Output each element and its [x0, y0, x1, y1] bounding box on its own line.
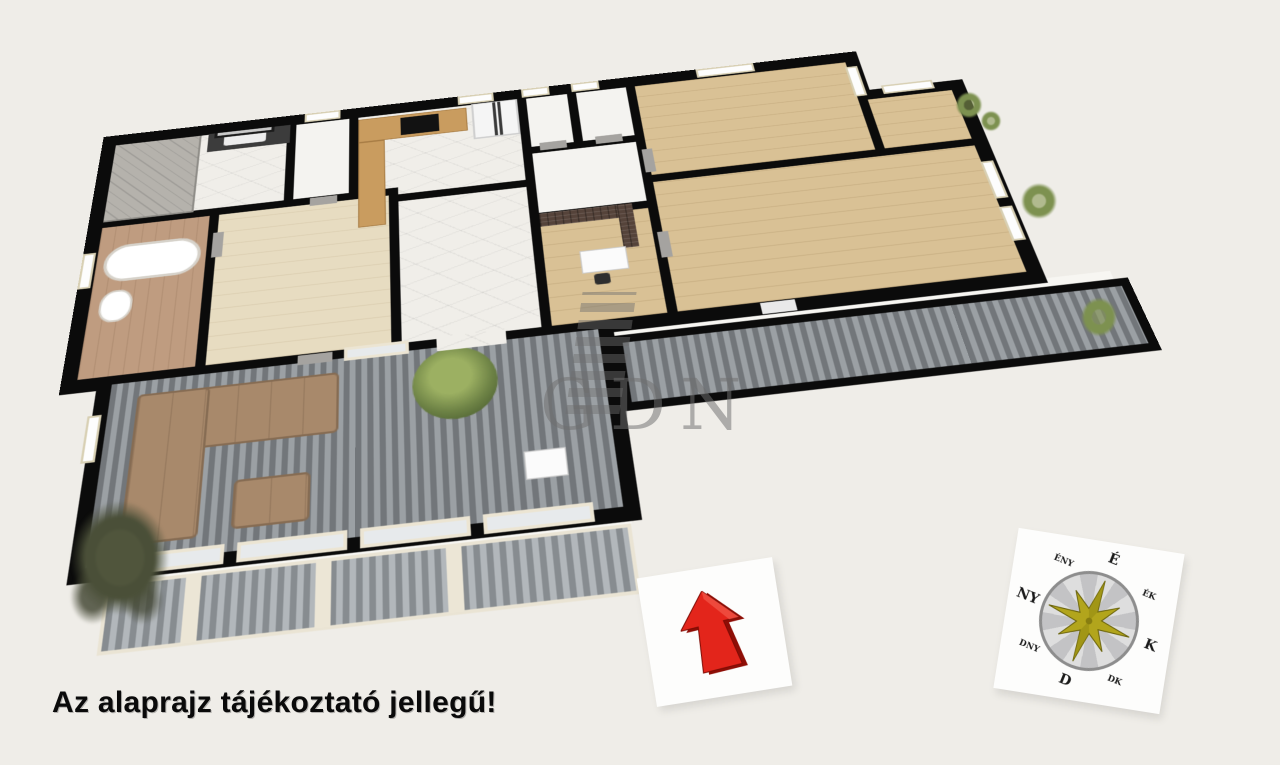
bush — [1076, 292, 1122, 342]
compass-label-e: K — [1142, 636, 1159, 655]
porch-pillar — [314, 558, 331, 629]
red-arrow-icon — [673, 581, 762, 683]
compass-label-n: É — [1106, 550, 1122, 569]
floor-plan-rotation — [108, 45, 1006, 696]
floor-plan-3d — [15, 45, 1156, 686]
tv-cabinet — [524, 447, 569, 480]
compass-label-s: D — [1056, 671, 1073, 690]
door — [211, 232, 224, 258]
disclaimer-text: Az alaprajz tájékoztató jellegű! — [52, 686, 497, 720]
compass-rose: É ÉK K DK D DNY NY ÉNY — [987, 521, 1192, 720]
kitchen-counter — [358, 140, 386, 228]
ottoman — [231, 472, 311, 530]
fridge — [471, 98, 521, 139]
chair — [594, 272, 611, 284]
compass-card: É ÉK K DK D DNY NY ÉNY — [993, 528, 1184, 714]
floor-plan-image: GDN É ÉK K DK D DNY NY ÉNY — [0, 0, 1280, 765]
bush — [978, 108, 1004, 134]
compass-label-w: NY — [1014, 585, 1041, 608]
shower — [103, 136, 201, 223]
bush — [1016, 178, 1062, 224]
tree — [55, 488, 180, 643]
arrow-card — [637, 557, 793, 707]
compass-star-icon — [1024, 556, 1154, 686]
